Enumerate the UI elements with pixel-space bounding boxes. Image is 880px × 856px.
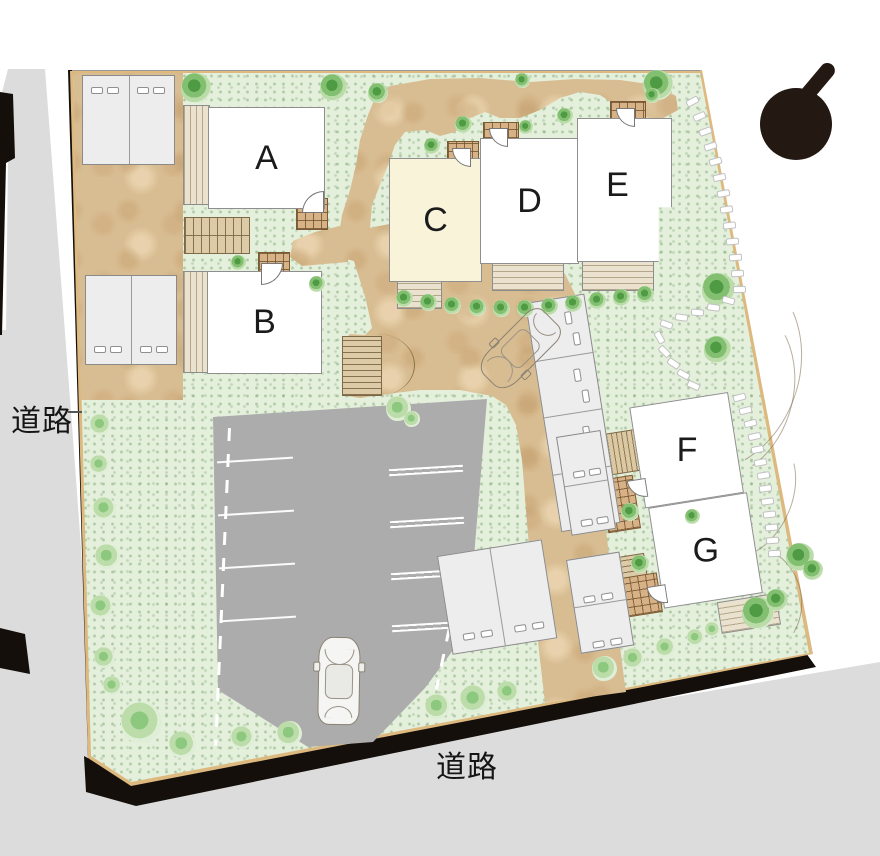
bush-icon — [95, 544, 120, 569]
tree-icon — [685, 509, 700, 524]
tree-icon — [444, 297, 461, 314]
bush-icon — [687, 629, 704, 646]
wheel-stop-icon — [514, 624, 527, 633]
tree-icon — [621, 503, 639, 521]
wheel-stop-icon — [573, 470, 586, 479]
tree-icon — [645, 88, 660, 103]
bush-icon — [592, 656, 617, 681]
bush-icon — [497, 681, 519, 703]
tree-icon — [320, 74, 347, 101]
building-b: B — [207, 271, 322, 374]
deck-building-a — [183, 105, 210, 205]
bush-icon — [169, 731, 196, 758]
wheel-stop-icon — [596, 516, 609, 525]
wheel-stop-icon — [480, 629, 493, 638]
wheel-stop-icon — [156, 346, 168, 353]
wheel-stop-icon — [463, 632, 476, 641]
bush-icon — [623, 648, 644, 669]
carport-divider — [574, 599, 626, 608]
stepping-stone-icon — [723, 221, 737, 229]
bush-icon — [94, 647, 115, 668]
car-icon — [317, 637, 361, 726]
wheel-stop-icon — [580, 518, 593, 527]
building-d-label: D — [517, 182, 542, 221]
bush-icon — [404, 411, 420, 427]
stepping-stone-icon — [765, 523, 779, 531]
stepping-stone-icon — [726, 237, 740, 245]
tree-icon — [631, 555, 649, 573]
bush-icon — [90, 595, 113, 618]
stairs-between-a-b — [184, 217, 250, 254]
carport — [82, 75, 175, 165]
carport-divider — [565, 480, 608, 488]
building-f-label: F — [676, 431, 697, 470]
stepping-stone-icon — [733, 286, 746, 293]
tree-icon — [565, 295, 582, 312]
stepping-stone-icon — [763, 510, 777, 518]
road-label-bottom: 道路 — [436, 742, 498, 786]
wheel-stop-icon — [573, 368, 582, 382]
bush-icon — [460, 685, 488, 713]
bush-icon — [705, 622, 720, 637]
carport — [85, 275, 177, 365]
tree-icon — [368, 83, 388, 103]
building-e-label: E — [606, 166, 629, 205]
tree-icon — [515, 73, 530, 88]
bush-icon — [121, 702, 162, 743]
wheel-stop-icon — [137, 87, 149, 94]
bush-icon — [277, 721, 302, 746]
stepping-stone-icon — [712, 173, 726, 183]
wheel-stop-icon — [583, 595, 596, 604]
tree-icon — [803, 560, 823, 580]
tree-icon — [493, 300, 510, 317]
wheel-stop-icon — [140, 346, 152, 353]
stepping-stone-icon — [768, 550, 781, 558]
site-plan-canvas: A B C D E F G 道路 道路 — [0, 0, 880, 856]
bush-icon — [425, 694, 450, 719]
stepping-stone-icon — [716, 189, 730, 198]
stepping-stone-icon — [766, 537, 779, 545]
bush-icon — [90, 455, 109, 474]
building-a: A — [208, 107, 325, 209]
wheel-stop-icon — [91, 87, 103, 94]
wheel-stop-icon — [153, 87, 165, 94]
wheel-stop-icon — [572, 332, 581, 346]
building-a-label: A — [255, 139, 278, 178]
tree-icon — [469, 299, 486, 316]
tree-icon — [455, 116, 472, 133]
carport-divider — [129, 76, 130, 164]
stepping-stone-icon — [729, 254, 742, 262]
tree-icon — [766, 589, 788, 611]
bush-icon — [93, 497, 116, 520]
tree-icon — [613, 289, 630, 306]
road-label-left: 道路 — [11, 396, 73, 440]
tree-icon — [231, 255, 246, 270]
wheel-stop-icon — [592, 640, 605, 649]
stairs-central — [342, 336, 382, 396]
tree-icon — [589, 292, 606, 309]
tree-icon — [396, 290, 413, 307]
wheel-stop-icon — [601, 592, 614, 601]
tree-icon — [309, 276, 325, 292]
carport-divider — [544, 408, 601, 418]
tree-icon — [704, 336, 731, 363]
bush-icon — [90, 414, 111, 435]
road-label-tick — [68, 411, 82, 413]
tree-icon — [420, 294, 437, 311]
tree-icon — [424, 138, 440, 154]
building-e: E — [577, 118, 672, 262]
tree-icon — [637, 286, 654, 303]
building-g-label: G — [692, 531, 718, 570]
bush-icon — [103, 676, 122, 695]
wheel-stop-icon — [588, 467, 601, 476]
tree-icon — [557, 108, 573, 124]
carport-divider — [131, 276, 132, 364]
carport — [437, 539, 557, 654]
stepping-stone-icon — [691, 308, 705, 316]
tree-icon — [519, 120, 533, 134]
building-b-label: B — [253, 303, 276, 342]
tree-icon — [181, 73, 211, 103]
wheel-stop-icon — [110, 346, 122, 353]
wheel-stop-icon — [107, 87, 119, 94]
bush-icon — [231, 726, 254, 749]
wheel-stop-icon — [610, 637, 623, 646]
building-d: D — [480, 138, 579, 264]
stepping-stone-icon — [731, 270, 744, 278]
wheel-stop-icon — [94, 346, 106, 353]
building-c: C — [389, 158, 482, 282]
stepping-stone-icon — [720, 205, 734, 214]
bush-icon — [656, 638, 675, 657]
wheel-stop-icon — [581, 389, 590, 403]
deck-building-d — [492, 261, 564, 291]
wheel-stop-icon — [532, 621, 545, 630]
wheel-stop-icon — [564, 311, 573, 325]
site-boundary-top-line — [72, 70, 700, 71]
building-c-label: C — [423, 201, 448, 240]
deck-building-b — [183, 271, 209, 373]
